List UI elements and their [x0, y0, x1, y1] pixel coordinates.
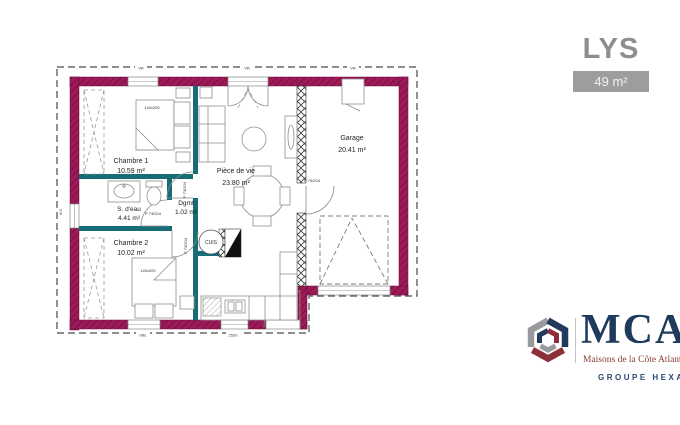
garage-sectional-door: [320, 216, 388, 284]
svg-text:P 73/204: P 73/204: [183, 237, 188, 254]
dining-table: [234, 166, 290, 226]
stove: [203, 298, 221, 316]
room-chambre2-name: Chambre 2: [114, 240, 149, 247]
bathroom-fixtures: [108, 181, 162, 205]
bed-2: [132, 258, 176, 306]
room-sejour-name: Pièce de vie: [217, 168, 255, 175]
brand-tagline: Maisons de la Côte Atlantique: [583, 355, 680, 365]
svg-text:CUIS: CUIS: [205, 240, 218, 246]
wardrobe-1: [84, 90, 104, 174]
sideboard: [285, 116, 297, 158]
brand-name: MCA: [581, 306, 680, 354]
kitchen-units: [201, 252, 297, 320]
toilet: [146, 181, 162, 187]
room-chambre2-area: 10.02 m²: [117, 250, 145, 257]
svg-text:VR: VR: [350, 66, 356, 71]
kitchen-column: [280, 252, 297, 320]
svg-text:VR: VR: [138, 66, 144, 71]
floor-plan-page: CUIS: [0, 0, 680, 425]
tv-console: [200, 87, 212, 98]
room-chambre1-name: Chambre 1: [114, 158, 149, 165]
coffee-table: [242, 127, 266, 151]
room-chambre1-area: 10.59 m²: [117, 168, 145, 175]
wardrobe-2: [84, 238, 104, 318]
garage-equipment: [320, 79, 388, 284]
svg-text:P 73/204: P 73/204: [182, 181, 187, 198]
hexagon-logo-icon: [525, 316, 573, 364]
area-badge: 49 m²: [573, 71, 649, 92]
plan-title: LYS: [571, 33, 651, 66]
svg-text:VR: VR: [244, 66, 250, 71]
svg-text:P 73/204: P 73/204: [145, 211, 162, 216]
garage-separation-wall: [297, 86, 306, 286]
svg-text:P 75/204: P 75/204: [304, 178, 321, 183]
windows: [70, 77, 390, 329]
logo-divider: [575, 318, 576, 363]
room-sejour-area: 23.80 m²: [222, 180, 250, 187]
svg-text:8.0: 8.0: [58, 208, 63, 214]
room-garage-area: 20.41 m²: [338, 147, 366, 154]
room-dgmt-name: Dgmt: [178, 200, 194, 207]
svg-text:140x200: 140x200: [144, 105, 160, 110]
svg-text:VBL: VBL: [139, 333, 147, 338]
sofa: [199, 106, 225, 162]
room-dgmt-area: 1.02 m²: [175, 209, 198, 216]
room-garage-name: Garage: [340, 135, 363, 142]
room-sdeau-area: 4.41 m²: [118, 215, 141, 222]
brand-group: GROUPE HEXAOM: [598, 373, 680, 382]
svg-text:2520: 2520: [229, 333, 239, 338]
livingroom-furniture: [199, 87, 297, 226]
kitchen-label: CUIS: [199, 230, 223, 254]
svg-text:140x200: 140x200: [140, 268, 156, 273]
room-sdeau-name: S. d'eau: [117, 206, 141, 213]
